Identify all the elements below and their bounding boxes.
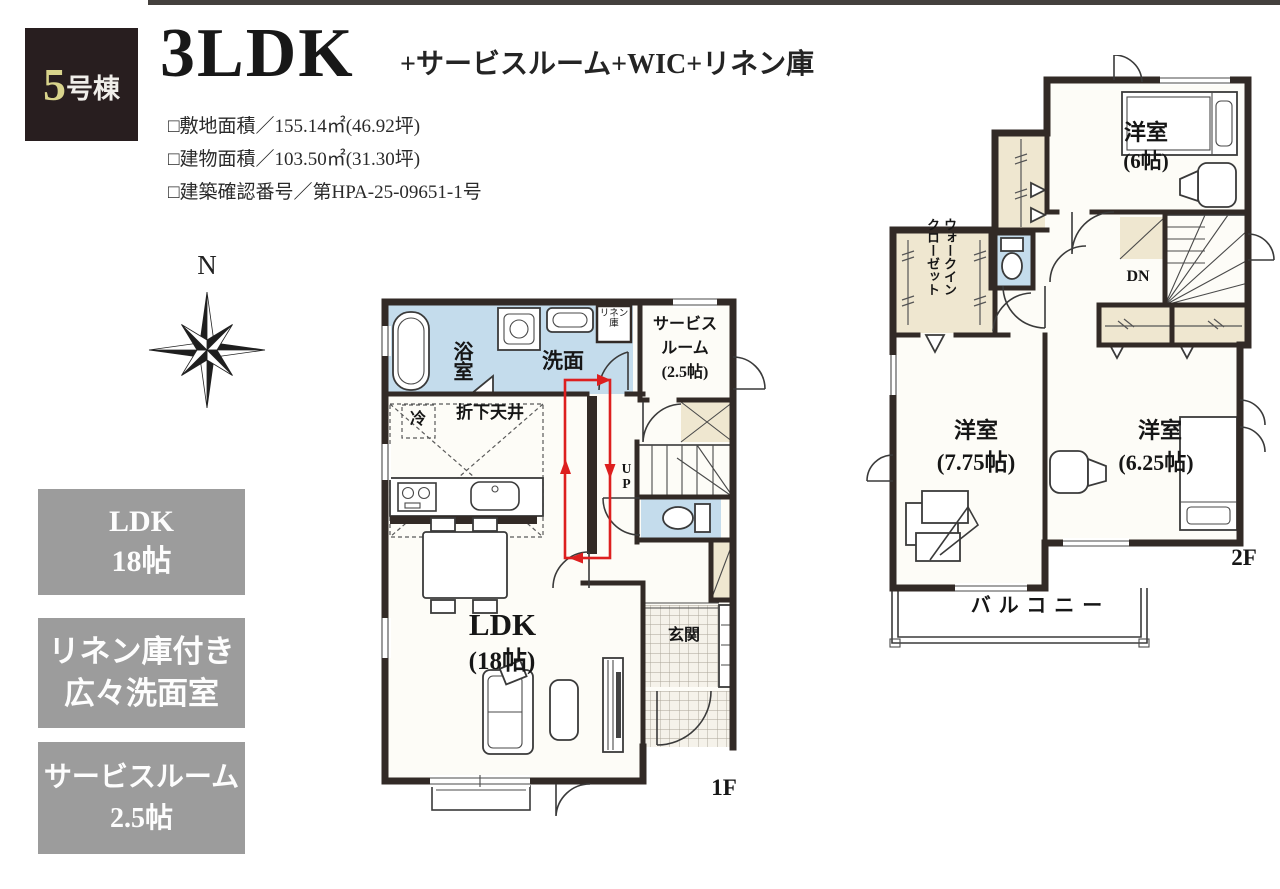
room-label-bedroom6: 洋室 (1108, 121, 1184, 145)
spec-building-area: □建物面積／103.50㎡(31.30坪) (168, 143, 482, 176)
toilet-icon-1f (663, 504, 710, 532)
feature-washroom-line1: リネン庫付き (49, 631, 235, 673)
terrace (432, 786, 530, 810)
feature-ldk-line1: LDK (109, 502, 174, 542)
compass-north-label: N (190, 250, 224, 282)
washer-icon (498, 308, 540, 350)
dining-set (423, 518, 507, 613)
room-label-bedroom6-size: (6帖) (1104, 150, 1188, 173)
kitchen-counter (390, 478, 543, 524)
top-rule (148, 0, 1280, 5)
label-fridge: 冷 (403, 411, 433, 428)
label-balcony: バルコニー (958, 596, 1123, 618)
page-title: 3LDK (160, 14, 355, 94)
label-stairs-down: DN (1118, 268, 1158, 285)
coffee-table-icon (550, 680, 578, 740)
room-label-ldk-size: (18帖) (443, 648, 561, 675)
feature-ldk-line2: 18帖 (112, 542, 172, 582)
room-label-linen: リネン 庫 (597, 309, 631, 330)
room-label-entrance: 玄関 (658, 627, 710, 644)
room-label-bedroom625-size: (6.25帖) (1100, 451, 1212, 475)
unit-number: 5 (43, 62, 66, 108)
page-subtitle: +サービスルーム+WIC+リネン庫 (400, 42, 814, 82)
floorplan-page: 5号棟 3LDK +サービスルーム+WIC+リネン庫 □敷地面積／155.14㎡… (0, 0, 1280, 889)
feature-washroom-line2: 広々洗面室 (64, 673, 219, 715)
room-label-bedroom625: 洋室 (1124, 419, 1196, 443)
unit-badge: 5号棟 (25, 28, 138, 141)
floor2-plan (860, 55, 1280, 655)
feature-box-ldk: LDK 18帖 (38, 489, 245, 595)
feature-box-washroom: リネン庫付き 広々洗面室 (38, 618, 245, 728)
room-label-washroom: 洗面 (528, 350, 598, 373)
feature-box-serviceroom: サービスルーム 2.5帖 (38, 742, 245, 854)
vanity-icon (547, 308, 593, 332)
property-specs: □敷地面積／155.14㎡(46.92坪) □建物面積／103.50㎡(31.3… (168, 110, 482, 209)
room-label-serviceroom: サービス ルーム (2.5帖) (642, 313, 728, 385)
label-dropped-ceiling: 折下天井 (440, 404, 540, 422)
unit-suffix: 号棟 (66, 76, 120, 103)
room-label-wic: ウォークインクローゼット (916, 216, 958, 298)
spec-land-area: □敷地面積／155.14㎡(46.92坪) (168, 110, 482, 143)
floor1-label: 1F (700, 776, 748, 801)
spec-confirmation-number: □建築確認番号／第HPA-25-09651-1号 (168, 176, 482, 209)
label-stairs-up: UP (615, 455, 633, 497)
compass-rose-icon (140, 280, 274, 420)
toilet-icon-2f (1001, 238, 1023, 279)
floor2-label: 2F (1220, 546, 1268, 571)
room-label-bedroom775-size: (7.75帖) (916, 451, 1036, 476)
room-label-bath: 浴室 (441, 326, 471, 396)
room-label-bedroom775: 洋室 (938, 419, 1014, 443)
room-label-ldk: LDK (450, 608, 555, 641)
feature-serviceroom-line2: 2.5帖 (110, 798, 173, 839)
bathtub-icon (393, 312, 429, 390)
feature-serviceroom-line1: サービスルーム (44, 757, 239, 798)
tv-board-icon (603, 658, 623, 752)
